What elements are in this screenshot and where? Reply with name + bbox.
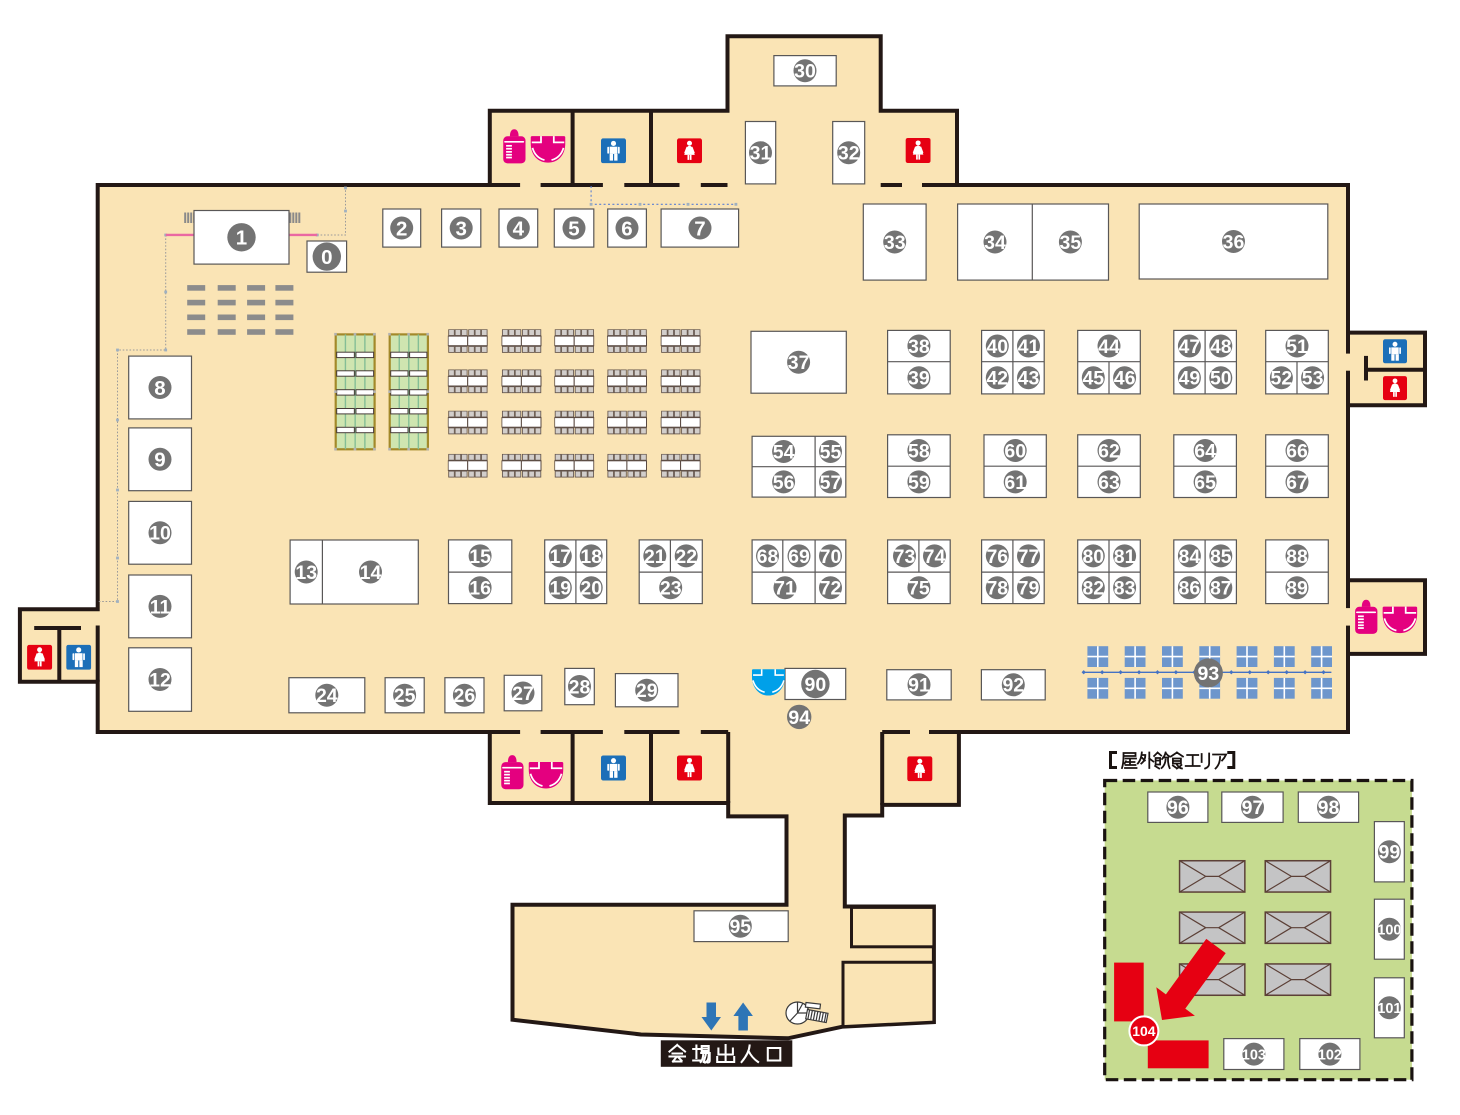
svg-text:62: 62 <box>1098 440 1120 462</box>
svg-text:102: 102 <box>1318 1047 1342 1063</box>
svg-text:75: 75 <box>908 578 930 600</box>
svg-text:97: 97 <box>1242 797 1264 819</box>
svg-text:4: 4 <box>513 217 525 240</box>
svg-text:28: 28 <box>569 676 591 698</box>
svg-text:5: 5 <box>568 217 579 240</box>
svg-text:65: 65 <box>1194 472 1216 494</box>
svg-text:81: 81 <box>1114 546 1136 568</box>
svg-text:100: 100 <box>1377 922 1401 938</box>
svg-text:35: 35 <box>1060 232 1082 254</box>
svg-text:19: 19 <box>549 578 571 600</box>
svg-text:67: 67 <box>1286 472 1308 494</box>
svg-text:61: 61 <box>1004 472 1026 494</box>
svg-text:38: 38 <box>908 336 930 358</box>
svg-text:23: 23 <box>660 578 682 600</box>
svg-text:59: 59 <box>908 472 930 494</box>
svg-text:51: 51 <box>1286 336 1308 358</box>
svg-text:77: 77 <box>1018 546 1040 568</box>
svg-text:8: 8 <box>154 377 165 400</box>
svg-text:42: 42 <box>986 368 1008 390</box>
svg-text:47: 47 <box>1179 336 1201 358</box>
svg-text:3: 3 <box>455 217 466 240</box>
svg-text:43: 43 <box>1018 368 1040 390</box>
svg-text:29: 29 <box>636 680 658 702</box>
svg-text:0: 0 <box>321 246 332 269</box>
svg-text:87: 87 <box>1210 578 1232 600</box>
svg-text:56: 56 <box>773 472 795 494</box>
svg-text:83: 83 <box>1114 578 1136 600</box>
svg-text:70: 70 <box>820 546 842 568</box>
svg-text:30: 30 <box>794 61 816 83</box>
svg-text:2: 2 <box>396 217 407 240</box>
svg-text:46: 46 <box>1114 368 1136 390</box>
svg-text:68: 68 <box>757 546 779 568</box>
svg-text:24: 24 <box>316 685 338 707</box>
svg-text:55: 55 <box>820 441 842 463</box>
svg-text:52: 52 <box>1271 368 1293 390</box>
svg-text:14: 14 <box>360 562 382 584</box>
svg-text:88: 88 <box>1286 546 1308 568</box>
svg-text:25: 25 <box>394 685 416 707</box>
svg-text:96: 96 <box>1167 797 1189 819</box>
svg-text:36: 36 <box>1223 231 1245 253</box>
svg-text:26: 26 <box>454 685 476 707</box>
svg-text:27: 27 <box>512 683 534 705</box>
svg-text:58: 58 <box>908 440 930 462</box>
svg-text:10: 10 <box>149 523 171 545</box>
svg-text:53: 53 <box>1302 368 1324 390</box>
svg-text:80: 80 <box>1082 546 1104 568</box>
svg-text:91: 91 <box>908 675 930 697</box>
svg-text:69: 69 <box>788 546 810 568</box>
svg-text:48: 48 <box>1210 336 1232 358</box>
svg-text:31: 31 <box>750 143 772 165</box>
svg-text:99: 99 <box>1379 842 1401 864</box>
svg-text:104: 104 <box>1132 1023 1156 1039</box>
svg-text:90: 90 <box>805 674 827 696</box>
svg-text:101: 101 <box>1377 1001 1401 1017</box>
svg-text:72: 72 <box>820 578 842 600</box>
svg-text:82: 82 <box>1082 578 1104 600</box>
svg-text:94: 94 <box>788 707 810 729</box>
svg-text:71: 71 <box>774 578 796 600</box>
svg-text:95: 95 <box>729 916 751 938</box>
svg-text:74: 74 <box>924 546 946 568</box>
svg-text:7: 7 <box>694 217 705 240</box>
svg-text:33: 33 <box>884 232 906 254</box>
svg-text:15: 15 <box>469 546 491 568</box>
svg-text:12: 12 <box>149 669 171 691</box>
svg-text:66: 66 <box>1286 440 1308 462</box>
svg-text:57: 57 <box>820 472 842 494</box>
svg-text:20: 20 <box>580 578 602 600</box>
svg-text:41: 41 <box>1018 336 1040 358</box>
svg-text:89: 89 <box>1286 578 1308 600</box>
svg-text:84: 84 <box>1179 546 1201 568</box>
svg-text:45: 45 <box>1082 368 1104 390</box>
svg-text:93: 93 <box>1198 663 1220 685</box>
svg-text:32: 32 <box>838 143 860 165</box>
svg-text:34: 34 <box>984 232 1006 254</box>
svg-text:54: 54 <box>773 441 795 463</box>
svg-text:50: 50 <box>1210 368 1232 390</box>
svg-text:37: 37 <box>788 352 810 374</box>
svg-text:79: 79 <box>1018 578 1040 600</box>
svg-text:92: 92 <box>1002 675 1024 697</box>
svg-text:49: 49 <box>1179 368 1201 390</box>
svg-text:13: 13 <box>295 562 317 584</box>
svg-text:21: 21 <box>644 546 666 568</box>
svg-text:64: 64 <box>1194 440 1216 462</box>
svg-text:63: 63 <box>1098 472 1120 494</box>
svg-text:6: 6 <box>621 217 632 240</box>
svg-text:40: 40 <box>986 336 1008 358</box>
svg-text:11: 11 <box>150 596 171 618</box>
svg-text:16: 16 <box>469 578 491 600</box>
svg-text:17: 17 <box>549 546 571 568</box>
svg-text:44: 44 <box>1098 336 1120 358</box>
svg-text:86: 86 <box>1179 578 1201 600</box>
svg-text:18: 18 <box>580 546 602 568</box>
svg-text:85: 85 <box>1210 546 1232 568</box>
svg-text:1: 1 <box>236 227 247 250</box>
svg-text:22: 22 <box>675 546 697 568</box>
svg-text:60: 60 <box>1004 440 1026 462</box>
svg-text:39: 39 <box>908 368 930 390</box>
svg-text:103: 103 <box>1242 1047 1266 1063</box>
svg-text:98: 98 <box>1318 797 1340 819</box>
svg-text:78: 78 <box>986 578 1008 600</box>
svg-text:73: 73 <box>894 546 916 568</box>
svg-text:9: 9 <box>154 449 165 472</box>
svg-text:76: 76 <box>986 546 1008 568</box>
